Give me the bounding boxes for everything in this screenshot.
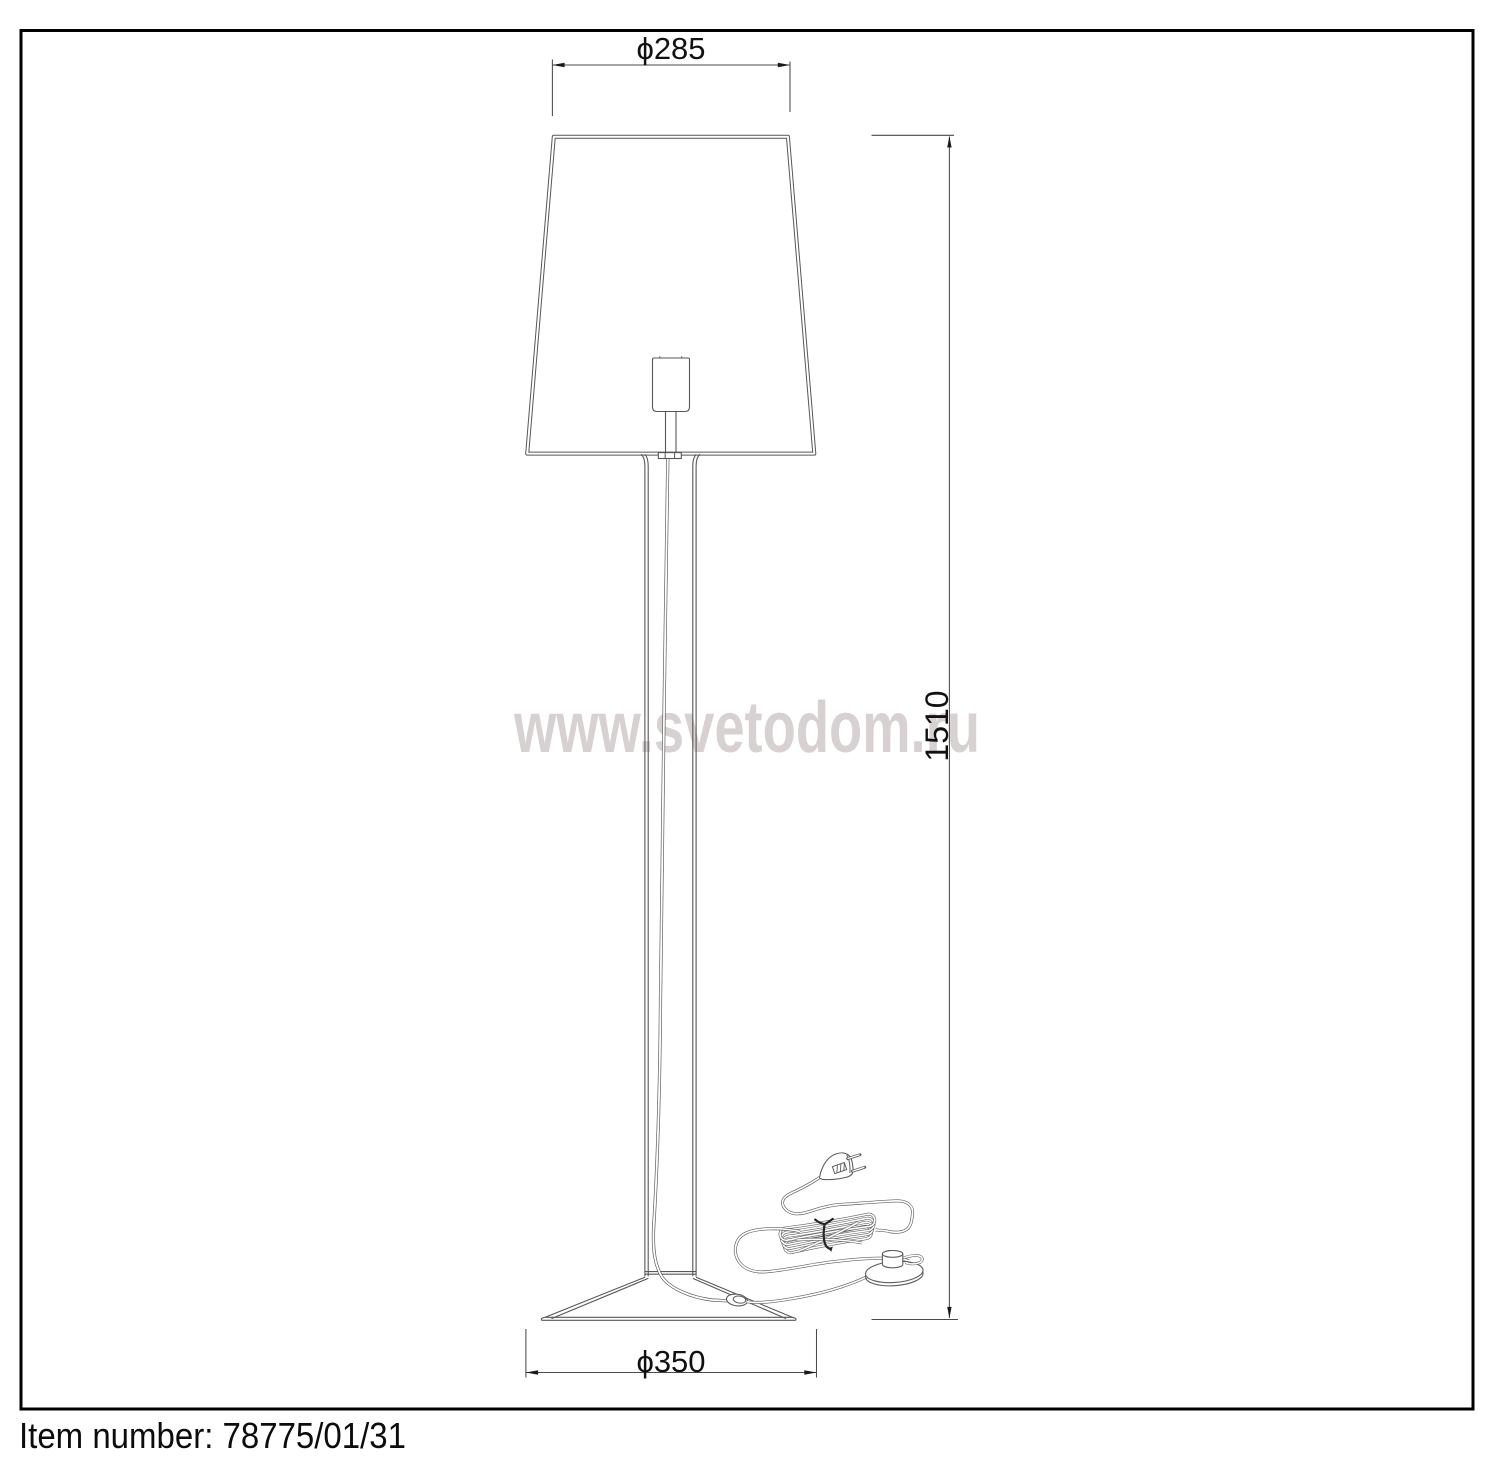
svg-text:Item number: 78775/01/31: Item number: 78775/01/31 (19, 1415, 406, 1456)
svg-text:www.svetodom.ru: www.svetodom.ru (513, 688, 980, 768)
svg-text:ϕ285: ϕ285 (636, 31, 705, 66)
svg-text:ϕ350: ϕ350 (636, 1344, 705, 1379)
svg-text:1510: 1510 (919, 690, 955, 761)
